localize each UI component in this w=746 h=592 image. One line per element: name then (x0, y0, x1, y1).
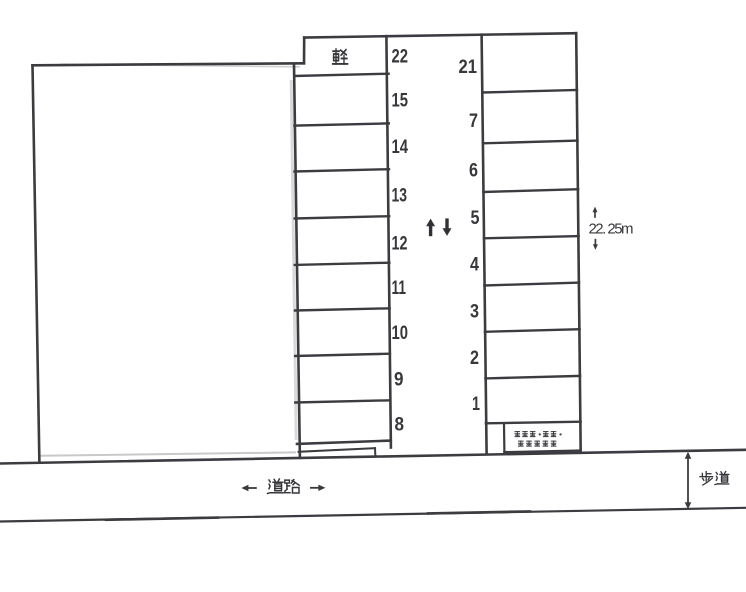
svg-text:7: 7 (469, 111, 478, 132)
svg-text:6: 6 (469, 161, 478, 182)
svg-text:21: 21 (459, 57, 478, 78)
svg-text:3: 3 (470, 302, 479, 323)
svg-text:8: 8 (395, 415, 405, 436)
svg-text:12: 12 (392, 234, 408, 255)
svg-text:11: 11 (392, 278, 407, 299)
svg-text:22. 25m: 22. 25m (589, 220, 634, 237)
svg-text:13: 13 (392, 186, 408, 207)
svg-text:10: 10 (392, 323, 409, 344)
svg-text:9: 9 (394, 370, 404, 391)
svg-text:2: 2 (470, 348, 479, 369)
svg-text:1: 1 (472, 394, 480, 415)
svg-text:4: 4 (470, 255, 479, 276)
svg-text:5: 5 (471, 208, 480, 229)
svg-text:22: 22 (392, 47, 409, 68)
svg-text:15: 15 (392, 91, 409, 112)
svg-text:14: 14 (392, 137, 409, 158)
